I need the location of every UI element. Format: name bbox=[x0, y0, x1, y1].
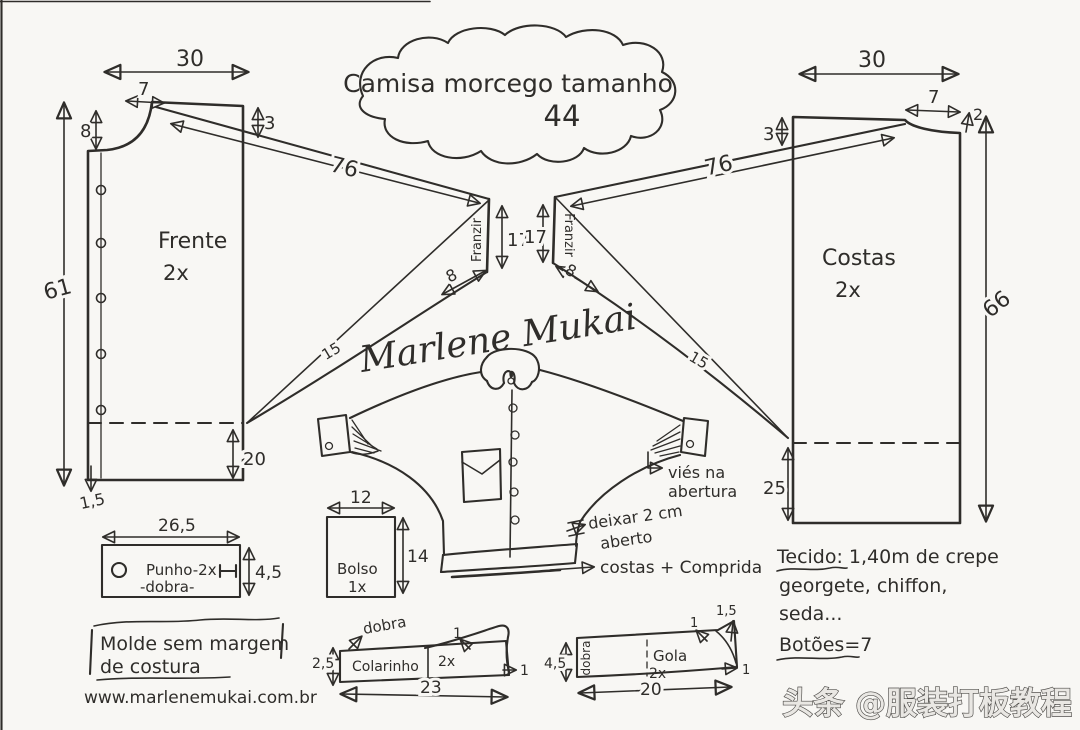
molde-bar-left bbox=[90, 630, 92, 674]
gola-tip-top-arrow bbox=[697, 631, 707, 641]
bolso-label: Bolso bbox=[337, 560, 378, 578]
right-sleeve-seam-lower bbox=[553, 263, 788, 438]
bias-note-line2: abertura bbox=[668, 482, 737, 501]
shirt-pocket bbox=[462, 449, 501, 502]
costas-neck-depth-arrow bbox=[966, 114, 969, 132]
bolso-width-value: 12 bbox=[350, 488, 372, 508]
costas-outline bbox=[793, 117, 960, 523]
fabric-line1: Tecido: 1,40m de crepe bbox=[776, 546, 999, 568]
gola-fold-label: dobra bbox=[579, 641, 593, 676]
right-sleeve-width-value: 15 bbox=[686, 348, 712, 373]
back-longer-arrow bbox=[550, 567, 593, 570]
bolso-qty: 1x bbox=[348, 578, 367, 596]
left-sleeve-width-value: 15 bbox=[319, 339, 345, 364]
title-cloud: Camisa morcego tamanho 44 bbox=[343, 25, 675, 163]
frente-label: Frente bbox=[158, 229, 227, 254]
punho-width-value: 26,5 bbox=[158, 516, 196, 536]
frente-hem-value: 1,5 bbox=[78, 489, 107, 513]
frente-qty: 2x bbox=[163, 261, 189, 285]
colarinho-tip-right-value: 1 bbox=[520, 663, 529, 679]
costas-neck-width-value: 7 bbox=[928, 87, 939, 108]
shirt-band-left bbox=[441, 555, 443, 572]
molde-note: Molde sem margem de costura www.marlenem… bbox=[84, 618, 317, 708]
colarinho-fold-label: dobra bbox=[362, 613, 408, 638]
left-cuff-edge bbox=[487, 199, 489, 272]
gola-label: Gola bbox=[653, 647, 687, 665]
open-note-line2: aberto bbox=[599, 527, 654, 553]
sketch-cuff-right bbox=[681, 418, 708, 456]
colarinho-qty: 2x bbox=[438, 654, 455, 670]
open-arrow bbox=[567, 525, 584, 531]
sketch-cuff-left bbox=[318, 415, 350, 456]
punho-buttonhole-mark bbox=[220, 565, 236, 577]
costas-shoulder-drop-value: 3 bbox=[763, 124, 774, 145]
gola-tip-right-value: 1 bbox=[742, 663, 750, 678]
shirt-placket-line bbox=[510, 390, 512, 557]
shirt-wing-top-right bbox=[540, 370, 683, 421]
watermark: 头条 @服装打板教程 bbox=[782, 686, 1072, 722]
fabric-underline2 bbox=[777, 656, 859, 660]
colarinho-piece: dobra 2,5 Colarinho 2x 23 1 1 bbox=[312, 613, 529, 698]
collar-point-right bbox=[514, 382, 532, 389]
punho-button bbox=[112, 563, 126, 577]
costas-piece: Costas 2x 30 7 2 3 66 25 bbox=[763, 48, 1016, 523]
designer-signature: Marlene Mukai bbox=[356, 297, 639, 381]
website: www.marlenemukai.com.br bbox=[84, 688, 317, 708]
punho-height-value: 4,5 bbox=[255, 563, 282, 583]
fabric-line2: georgete, chiffon, bbox=[779, 575, 947, 597]
gola-piece: dobra 4,5 Gola 2x 20 1 1,5 1 bbox=[544, 604, 750, 700]
costas-length-value: 66 bbox=[978, 286, 1015, 323]
punho-fold-label: -dobra- bbox=[140, 578, 194, 596]
gola-width-value: 20 bbox=[640, 680, 662, 700]
costas-neck-width-arrow bbox=[907, 110, 959, 112]
frente-piece: Frente 2x 30 7 8 3 61 20 1,5 bbox=[41, 47, 276, 513]
left-sleeve-length-arrow bbox=[172, 124, 479, 203]
bolso-height-value: 14 bbox=[407, 547, 429, 567]
molde-line1: Molde sem margem bbox=[100, 633, 289, 655]
left-sleeve-seam-upper bbox=[247, 200, 489, 423]
pattern-diagram: Camisa morcego tamanho 44 Frente 2x 30 7… bbox=[0, 0, 1080, 730]
frente-neck-width-value: 7 bbox=[138, 79, 149, 100]
fabric-line3: seda... bbox=[779, 603, 842, 625]
gola-tip-top-value: 1 bbox=[690, 616, 698, 631]
gola-inner-curve bbox=[716, 631, 736, 663]
gola-rise-value: 1,5 bbox=[716, 604, 737, 619]
sketch-cuff-left-button bbox=[326, 443, 333, 450]
molde-line2: de costura bbox=[100, 656, 201, 678]
colarinho-fold-arrow bbox=[349, 637, 361, 649]
frente-shoulder-drop-value: 3 bbox=[264, 113, 275, 134]
sketch-cuff-right-button bbox=[687, 441, 694, 448]
frente-slit-value: 20 bbox=[243, 449, 266, 470]
bias-note-line1: viés na bbox=[668, 463, 725, 482]
right-cuff-height-value: 17 bbox=[524, 227, 547, 248]
left-sleeve-length-value: 76 bbox=[328, 152, 361, 183]
colarinho-label: Colarinho bbox=[352, 659, 419, 675]
right-cuff-edge bbox=[553, 197, 555, 263]
frente-length-value: 61 bbox=[41, 274, 75, 305]
collar-point-left bbox=[487, 381, 504, 389]
punho-piece: 26,5 4,5 Punho-2x -dobra- bbox=[102, 516, 282, 597]
right-gather-label: Franzir bbox=[561, 213, 576, 258]
sewing-pattern-sheet: Camisa morcego tamanho 44 Frente 2x 30 7… bbox=[0, 0, 1080, 730]
left-gather-label: Franzir bbox=[470, 217, 485, 262]
gola-height-value: 4,5 bbox=[544, 656, 566, 672]
fabric-notes: Tecido: 1,40m de crepe georgete, chiffon… bbox=[776, 546, 999, 660]
costas-neck-depth-value: 2 bbox=[973, 105, 983, 124]
sketch-notes: viés na abertura deixar 2 cm aberto cost… bbox=[550, 452, 762, 578]
fabric-line4: Botões=7 bbox=[779, 634, 872, 656]
shirt-pocket-flap bbox=[462, 460, 500, 474]
frente-neck-depth-value: 8 bbox=[80, 121, 91, 142]
costas-width-value: 30 bbox=[858, 48, 886, 73]
punho-label: Punho-2x bbox=[146, 561, 217, 579]
costas-label: Costas bbox=[822, 246, 896, 271]
collar-inner-band bbox=[503, 371, 514, 383]
back-longer-note: costas + Comprida bbox=[600, 558, 762, 578]
colarinho-height-value: 2,5 bbox=[312, 656, 334, 672]
gola-rise-arrow bbox=[731, 622, 733, 641]
colarinho-tip-top-value: 1 bbox=[453, 626, 462, 642]
bolso-piece: 12 14 Bolso 1x bbox=[327, 488, 429, 597]
costas-qty: 2x bbox=[835, 278, 861, 302]
collar-button bbox=[508, 378, 514, 384]
left-sleeve-top-edge bbox=[156, 107, 489, 199]
costas-slit-value: 25 bbox=[763, 478, 786, 499]
pattern-title: Camisa morcego tamanho bbox=[343, 69, 673, 98]
right-sleeve-length-value: 76 bbox=[702, 151, 735, 182]
gola-tip-right-arrow bbox=[722, 668, 736, 669]
left-underarm-value: 8 bbox=[443, 265, 460, 287]
gather-hatch-left bbox=[352, 420, 381, 453]
molde-overline bbox=[94, 618, 279, 626]
pattern-size: 44 bbox=[544, 99, 581, 133]
colarinho-width-value: 23 bbox=[420, 678, 442, 698]
shirt-band-right bbox=[575, 544, 577, 563]
frente-width-value: 30 bbox=[176, 47, 204, 72]
gather-hatch-right bbox=[651, 425, 680, 456]
